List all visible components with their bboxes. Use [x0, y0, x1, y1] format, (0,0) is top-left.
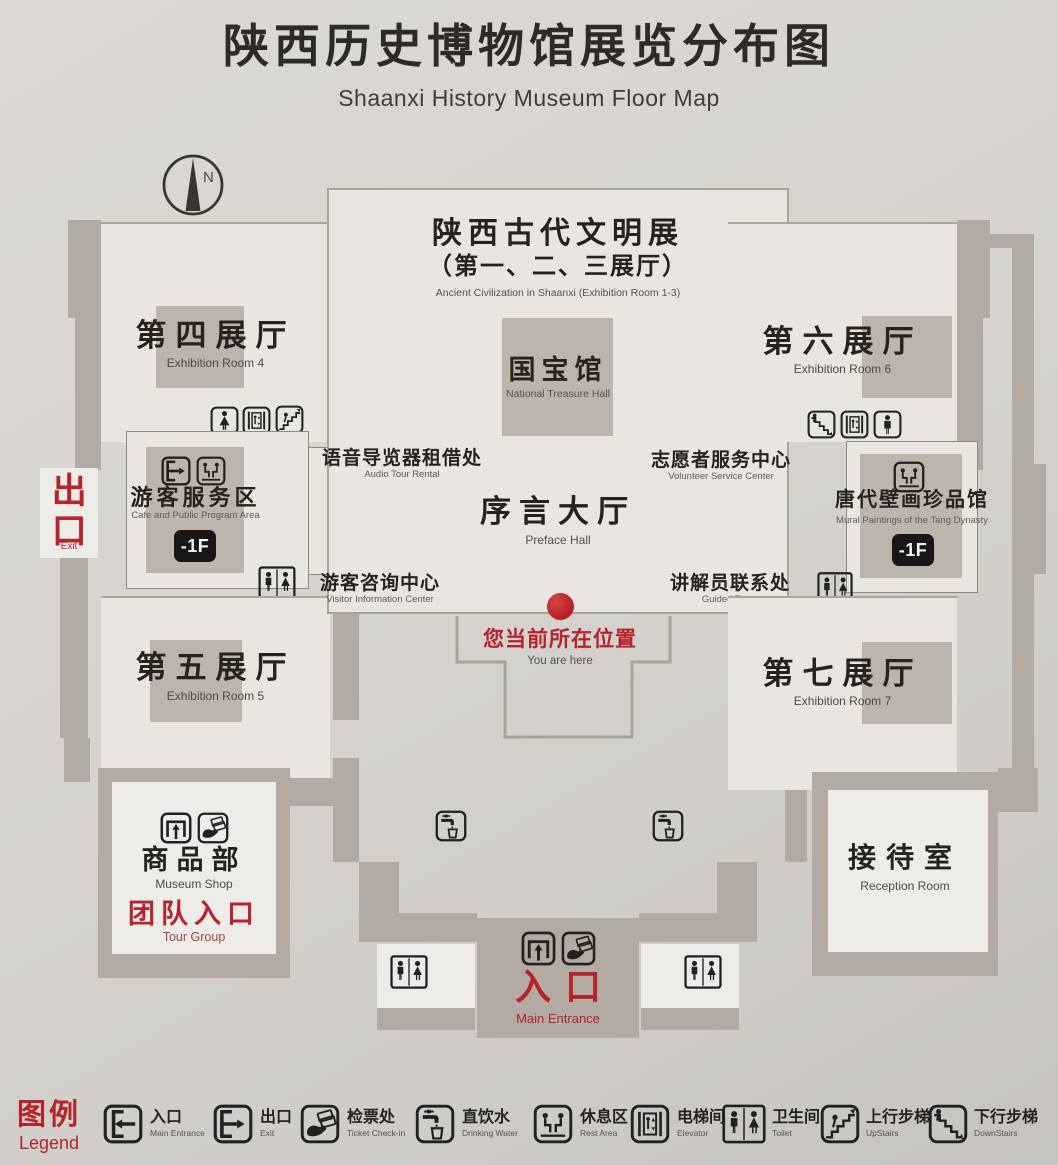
wall-segment	[398, 913, 477, 942]
murals-label: 唐代壁画珍品馆	[822, 490, 1002, 511]
rest-area-icon	[533, 1104, 573, 1144]
museum-shop-sublabel: Museum Shop	[98, 878, 290, 891]
legend-item-sublabel: Elevator	[677, 1129, 708, 1138]
drinking-water-icon	[435, 810, 467, 842]
wall-segment	[333, 614, 359, 720]
preface-hall-label: 序言大厅	[327, 496, 789, 529]
legend-item-sublabel: Exit	[260, 1129, 274, 1138]
floor-badge-minus1f: -1F	[892, 534, 934, 566]
audio-tour-sublabel: Audio Tour Rental	[322, 470, 482, 480]
visitor-info-label: 游客咨询中心	[300, 574, 460, 594]
toilet-icon	[684, 954, 722, 990]
wall-segment	[639, 913, 718, 942]
stairs-up-icon	[275, 405, 304, 434]
ticket-icon	[300, 1104, 340, 1144]
compass-n-label: N	[203, 169, 214, 186]
door-out-icon	[213, 1104, 253, 1144]
compass-icon: N	[161, 153, 225, 217]
national-treasure-hall-sublabel: National Treasure Hall	[327, 389, 789, 400]
exhibition-room-5-label: 第五展厅	[101, 652, 330, 685]
legend-item-label: 上行步梯	[866, 1110, 930, 1127]
stairs-down-icon	[807, 410, 836, 439]
legend-item-sublabel: Ticket Check-in	[347, 1129, 405, 1138]
floor-map-poster: 陕西历史博物馆展览分布图 Shaanxi History Museum Floo…	[0, 0, 1058, 1165]
legend-item-sublabel: Toilet	[772, 1129, 792, 1138]
toilet-icon	[722, 1104, 766, 1144]
legend-item-label: 休息区	[580, 1110, 628, 1127]
legend-item-sublabel: UpStairs	[866, 1129, 899, 1138]
stairs-up-icon	[820, 1104, 860, 1144]
legend-item-label: 电梯间	[677, 1110, 725, 1127]
wall-segment	[75, 318, 101, 470]
reception-room-sublabel: Reception Room	[812, 880, 998, 893]
legend-item-label: 入口	[150, 1110, 182, 1127]
wall-segment	[717, 862, 757, 942]
wall-segment	[377, 1008, 475, 1030]
legend-title-en: Legend	[10, 1134, 88, 1153]
wall-segment	[60, 556, 88, 738]
legend-item-sublabel: Rest Area	[580, 1129, 617, 1138]
legend-item-label: 下行步梯	[974, 1110, 1038, 1127]
entrance-gate-icon	[160, 812, 192, 844]
volunteer-center-label: 志愿者服务中心	[641, 451, 801, 471]
exit-sign-label: 出口	[47, 472, 84, 538]
exhibition-room-6-label: 第六展厅	[728, 326, 957, 359]
legend-item-label: 出口	[260, 1110, 292, 1127]
service-area-label: 游客服务区	[104, 486, 287, 509]
legend-item-sublabel: DownStairs	[974, 1129, 1017, 1138]
courtyard-outline	[440, 605, 690, 750]
legend-item-sublabel: Main Entrance	[150, 1129, 205, 1138]
stairs-down-icon	[928, 1104, 968, 1144]
wall-segment	[957, 220, 990, 318]
legend-item-label: 直饮水	[462, 1110, 510, 1127]
exhibition-room-7-label: 第七展厅	[728, 658, 957, 691]
wall-segment	[998, 768, 1038, 812]
murals-sublabel: Mural Paintings of the Tang Dynasty	[822, 516, 1002, 526]
door-out-icon	[161, 456, 191, 486]
elevator-icon	[840, 410, 869, 439]
main-entrance-sublabel: Main Entrance	[477, 1012, 639, 1026]
exhibition-room-4-label: 第四展厅	[101, 320, 330, 353]
reception-room-label: 接待室	[812, 843, 998, 872]
toilet-man-icon	[873, 410, 902, 439]
preface-hall-sublabel: Preface Hall	[327, 534, 789, 547]
toilet-icon	[258, 566, 296, 600]
main-entrance-label: 入口	[477, 968, 639, 1006]
wall-segment	[64, 738, 90, 782]
exhibition-room-6-sublabel: Exhibition Room 6	[728, 363, 957, 376]
ancient-exhibit-label: 陕西古代文明展	[327, 218, 789, 250]
wall-segment	[641, 1008, 739, 1030]
ancient-exhibit-sublabel: Ancient Civilization in Shaanxi (Exhibit…	[327, 288, 789, 299]
wall-segment	[68, 220, 101, 318]
museum-shop-label: 商品部	[98, 846, 290, 874]
drinking-water-icon	[652, 810, 684, 842]
volunteer-center-sublabel: Volunteer Service Center	[641, 472, 801, 482]
ticket-icon	[197, 812, 229, 844]
tour-group-label: 团队入口	[98, 900, 290, 928]
toilet-icon	[390, 954, 428, 990]
wall-segment	[1012, 234, 1034, 772]
entrance-gate-icon	[521, 931, 556, 966]
exhibition-room-5-sublabel: Exhibition Room 5	[101, 690, 330, 703]
legend-item-label: 卫生间	[772, 1110, 820, 1127]
service-area-sublabel: Cafe and Public Program Area	[104, 511, 287, 521]
visitor-info-sublabel: Visitor Information Center	[300, 595, 460, 605]
water-icon	[415, 1104, 455, 1144]
legend-item-sublabel: Drinking Water	[462, 1129, 518, 1138]
ancient-exhibit-rooms-label: （第一、二、三展厅）	[327, 254, 789, 279]
page-title: 陕西历史博物馆展览分布图	[0, 22, 1058, 70]
exhibition-room-4-sublabel: Exhibition Room 4	[101, 357, 330, 370]
wall-segment	[333, 758, 359, 862]
audio-tour-label: 语音导览器租借处	[322, 449, 482, 469]
page-subtitle: Shaanxi History Museum Floor Map	[0, 86, 1058, 110]
exit-sign-sublabel: Exit	[40, 542, 98, 553]
wall-segment	[290, 778, 334, 806]
wall-segment	[359, 862, 399, 942]
legend-title: 图例	[10, 1100, 88, 1130]
guided-tours-label: 讲解员联系处	[650, 574, 810, 594]
ticket-icon	[561, 931, 596, 966]
floor-badge-minus1f: -1F	[174, 530, 216, 562]
legend-item-label: 检票处	[347, 1110, 395, 1127]
legend: 图例 Legend 入口 Main Entrance 出口 Exit 检票处 T…	[0, 1088, 1058, 1165]
tour-group-sublabel: Tour Group	[98, 931, 290, 944]
wall-segment	[1034, 464, 1046, 574]
door-in-icon	[103, 1104, 143, 1144]
rest-area-icon	[196, 456, 226, 486]
exhibition-room-7-sublabel: Exhibition Room 7	[728, 695, 957, 708]
national-treasure-hall-label: 国宝馆	[327, 356, 789, 384]
elevator-icon	[630, 1104, 670, 1144]
